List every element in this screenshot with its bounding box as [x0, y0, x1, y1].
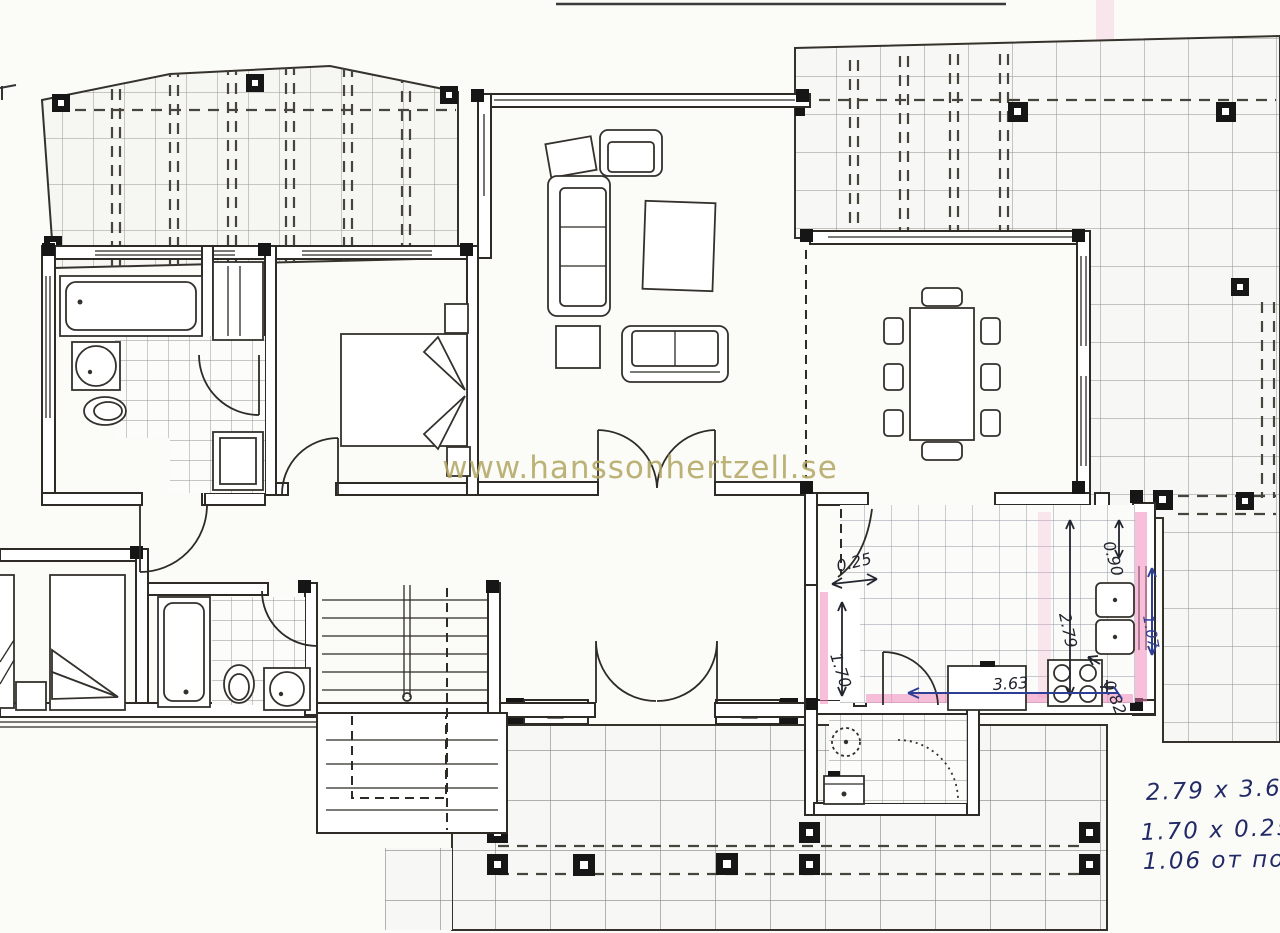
door-arc	[282, 438, 338, 494]
floor-plan-page: 2.79 1.70 0.90 1.07 0.82 3.63 0.25 www.h…	[0, 0, 1280, 933]
nightstand	[445, 304, 468, 333]
handwritten-notes: 2.79 x 3.63 1.70 x 0.25 М 1.06 от пола	[1140, 775, 1280, 875]
coffee-table	[642, 201, 715, 291]
highlight-wall-right	[1135, 512, 1147, 702]
kitchen	[820, 505, 1147, 710]
note-line-1: 2.79 x 3.63	[1145, 775, 1280, 806]
terrace-top-left	[42, 64, 458, 268]
wc-laundry	[824, 715, 967, 804]
floor-plan-drawing: 2.79 1.70 0.90 1.07 0.82 3.63 0.25 www.h…	[0, 0, 1280, 933]
toilet	[84, 397, 126, 425]
hall	[140, 505, 207, 572]
bathtub	[60, 276, 202, 336]
single-bed	[0, 575, 14, 708]
dim-kitchen-width: 3.63	[992, 673, 1029, 694]
appliance	[824, 776, 864, 804]
highlight-wall-pantry	[820, 592, 828, 704]
living-room	[545, 130, 728, 488]
door-arc	[140, 505, 207, 572]
side-table	[556, 326, 600, 368]
bathroom-2	[158, 591, 317, 710]
watermark: www.hanssonhertzell.se	[442, 450, 838, 486]
sofa-3seat	[548, 176, 610, 316]
side-table	[545, 136, 596, 177]
dining-room	[884, 288, 1000, 460]
note-line-2: 1.70 x 0.25 М	[1140, 814, 1280, 846]
note-line-3: 1.06 от пола	[1143, 846, 1280, 875]
bedroom-2	[0, 575, 125, 710]
washbasin	[72, 342, 120, 390]
nightstand	[16, 682, 46, 710]
french-door	[596, 641, 717, 703]
dining-table	[910, 308, 974, 440]
armchair	[600, 130, 662, 176]
entrance	[596, 641, 717, 703]
